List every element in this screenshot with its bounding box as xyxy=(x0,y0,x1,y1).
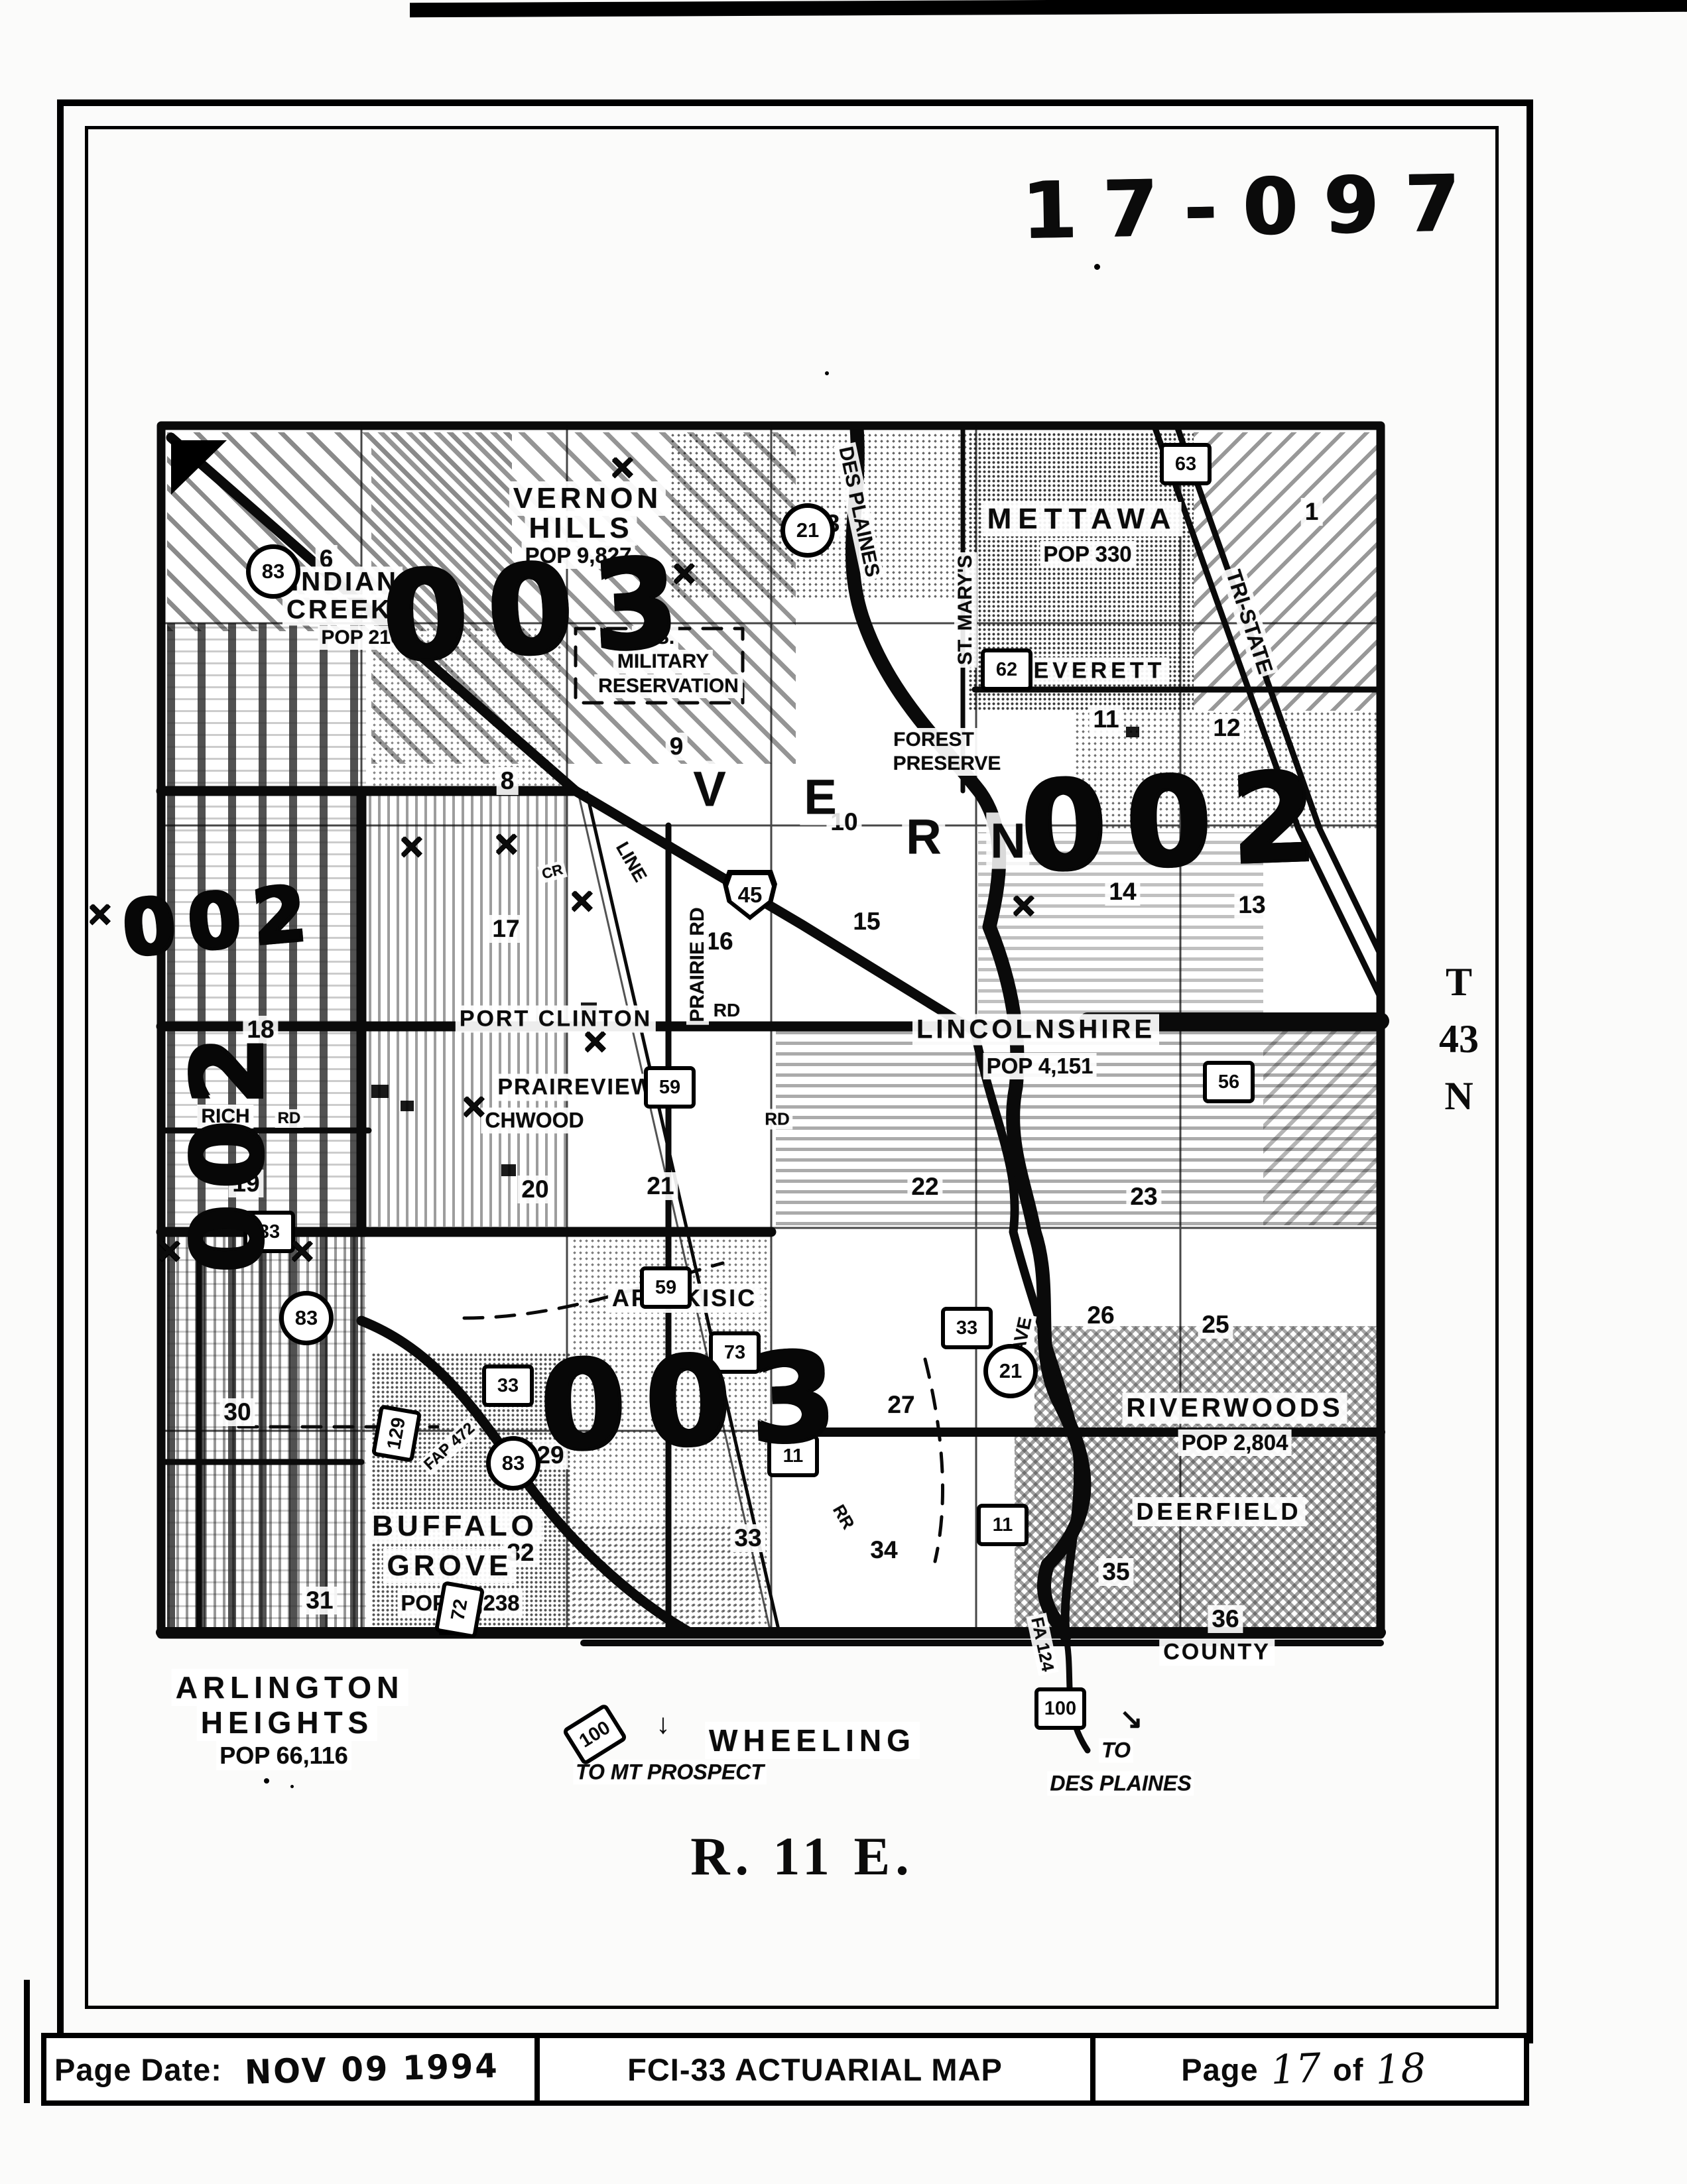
road-label: TRI-STATE xyxy=(1220,564,1279,679)
place-label: LINCOLNSHIRE xyxy=(912,1014,1159,1046)
page-date-stamp: NOV 09 1994 xyxy=(244,2047,499,2093)
route-badge: 83 xyxy=(486,1436,540,1490)
page-label: Page xyxy=(1181,2051,1258,2088)
place-label: HEIGHTS xyxy=(197,1704,377,1741)
road-label: FAP 472 xyxy=(418,1418,481,1476)
section-number: 13 xyxy=(1234,891,1269,919)
place-label: E xyxy=(800,769,840,825)
route-badge: 100 xyxy=(1034,1687,1086,1730)
place-label: POP 330 xyxy=(1040,541,1135,568)
route-badge: 129 xyxy=(371,1404,422,1463)
section-number: 22 xyxy=(907,1173,942,1201)
place-label: V xyxy=(689,761,729,818)
section-number: 15 xyxy=(849,908,884,936)
place-label: EVERETT xyxy=(1030,658,1170,685)
place-label: ARLINGTON xyxy=(172,1669,408,1706)
place-label: R xyxy=(902,809,945,865)
section-number: 17 xyxy=(488,915,523,943)
page-number-handwritten: 17 xyxy=(1269,2045,1322,2094)
section-number: 25 xyxy=(1198,1311,1233,1339)
zone-number: 002 xyxy=(117,867,320,973)
route-badge: 83 xyxy=(279,1291,334,1345)
zone-number: 003 xyxy=(536,1323,856,1477)
footer-page-number-cell: Page 17 of 18 xyxy=(1095,2038,1524,2100)
x-mark: ✕ xyxy=(288,1233,315,1270)
x-mark: ✕ xyxy=(582,1024,608,1061)
x-mark: ✕ xyxy=(460,1089,487,1126)
road-label: RD xyxy=(711,1000,743,1021)
footer-title-cell: FCI-33 ACTUARIAL MAP xyxy=(540,2038,1095,2100)
footer-page-date-cell: Page Date: NOV 09 1994 xyxy=(46,2038,540,2100)
place-label: GROVE xyxy=(383,1549,517,1583)
section-number: 26 xyxy=(1083,1302,1118,1329)
route-badge: 59 xyxy=(640,1266,692,1309)
place-label: PRESERVE xyxy=(889,752,1005,776)
road-label: CR xyxy=(537,860,567,883)
route-badge: 62 xyxy=(981,648,1032,691)
section-number: 21 xyxy=(643,1172,678,1200)
section-number: 12 xyxy=(1209,714,1244,742)
place-label: RIVERWOODS xyxy=(1122,1393,1347,1424)
of-label: of xyxy=(1333,2051,1363,2088)
place-label: FOREST xyxy=(889,728,978,752)
x-mark: ✕ xyxy=(398,829,424,866)
x-mark: ✕ xyxy=(86,896,113,934)
road-label: FA 124 xyxy=(1026,1612,1058,1675)
route-badge: 33 xyxy=(941,1307,993,1349)
route-badge: 33 xyxy=(482,1365,534,1407)
map-annotation: DES PLAINES xyxy=(1047,1772,1194,1796)
route-badge: 83 xyxy=(246,544,300,599)
road-label: PRAIRIE RD xyxy=(686,904,709,1024)
place-label: POP 66,116 xyxy=(216,1741,351,1770)
road-label: LINE xyxy=(610,836,653,888)
place-label: BUFFALO xyxy=(368,1509,542,1544)
section-number: 31 xyxy=(302,1587,337,1614)
section-number: 35 xyxy=(1098,1558,1133,1586)
section-number: 33 xyxy=(730,1524,765,1552)
place-label: DEERFIELD xyxy=(1132,1497,1305,1526)
route-badge: 72 xyxy=(434,1581,485,1639)
footer-bar: Page Date: NOV 09 1994 FCI-33 ACTUARIAL … xyxy=(41,2033,1529,2106)
map-annotation: ↘ xyxy=(1117,1703,1145,1735)
map-title: FCI-33 ACTUARIAL MAP xyxy=(627,2051,1003,2088)
section-number: 9 xyxy=(666,733,688,760)
place-label: POP 4,151 xyxy=(983,1053,1097,1079)
x-mark: ✕ xyxy=(493,826,519,863)
route-badge: 100 xyxy=(562,1703,628,1766)
zone-number: 002 xyxy=(170,1022,284,1274)
route-badge: 11 xyxy=(977,1504,1029,1546)
map-annotation: TO xyxy=(1099,1738,1133,1763)
route-badge: 21 xyxy=(781,503,835,558)
route-badge: 21 xyxy=(983,1344,1038,1398)
page-date-label: Page Date: xyxy=(54,2051,222,2088)
map-annotation: ↓ xyxy=(654,1708,673,1740)
x-mark: ✕ xyxy=(568,883,595,920)
place-label: PRAIREVIEW xyxy=(493,1074,657,1101)
zone-number: 003 xyxy=(377,529,700,689)
section-number: 20 xyxy=(517,1176,552,1203)
place-label: METTAWA xyxy=(983,502,1182,536)
section-number: 23 xyxy=(1126,1183,1161,1211)
place-label: POP 2,804 xyxy=(1178,1429,1292,1456)
x-mark: ✕ xyxy=(609,450,635,487)
route-badge: 45 xyxy=(723,870,777,920)
section-number: 34 xyxy=(866,1536,901,1564)
place-label: CHWOOD xyxy=(481,1108,588,1134)
page-total-handwritten: 18 xyxy=(1375,2045,1428,2094)
place-label: COUNTY xyxy=(1159,1639,1275,1666)
section-number: 27 xyxy=(883,1391,918,1419)
section-number: 30 xyxy=(219,1398,255,1426)
actuarial-map: 0030020020020031368910111213141516171819… xyxy=(0,0,1687,2184)
map-annotation: TO MT PROSPECT xyxy=(573,1760,767,1785)
road-label: ST. MARY'S xyxy=(954,552,977,668)
place-label: CREEK xyxy=(282,595,397,626)
zone-number: 002 xyxy=(1017,744,1337,898)
road-label: RD xyxy=(762,1109,792,1130)
route-badge: 56 xyxy=(1203,1061,1255,1103)
route-badge: 59 xyxy=(644,1066,696,1109)
section-number: 8 xyxy=(497,767,519,795)
place-label: RESERVATION xyxy=(594,674,743,698)
section-number: 11 xyxy=(1089,705,1123,733)
route-badge: 63 xyxy=(1160,443,1212,485)
place-label: PORT CLINTON xyxy=(456,1006,656,1033)
section-number: 36 xyxy=(1208,1605,1243,1633)
road-label: RR xyxy=(827,1499,860,1536)
place-label: WHEELING xyxy=(705,1722,920,1759)
section-number: 1 xyxy=(1301,498,1323,526)
